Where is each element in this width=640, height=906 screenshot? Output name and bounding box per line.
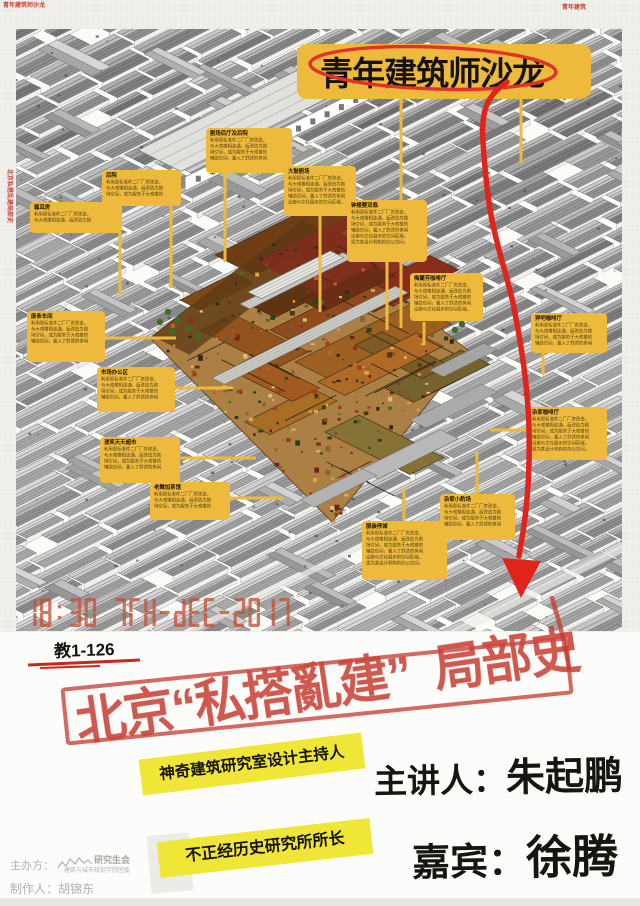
- svg-text:现为某设计机构的办公空间。: 现为某设计机构的办公空间。: [351, 239, 408, 246]
- svg-text:利用原标准件二厂厂房改造，: 利用原标准件二厂厂房改造，: [101, 376, 158, 383]
- svg-text:利用原标准件二厂厂房改造，: 利用原标准件二厂厂房改造，: [414, 282, 471, 289]
- svg-text:场空间，成为服务于大戏楼的: 场空间，成为服务于大戏楼的: [31, 332, 89, 339]
- svg-text:建筑与城市规划学院团委: 建筑与城市规划学院团委: [64, 866, 130, 874]
- svg-text:北京私搭乱建局部史: 北京私搭乱建局部史: [6, 169, 14, 224]
- svg-text:服装停城: 服装停城: [366, 522, 388, 530]
- svg-text:辅助空间，置入了舒适的休闲: 辅助空间，置入了舒适的休闲: [288, 193, 346, 200]
- svg-text:设施与文化展示的空间区域。: 设施与文化展示的空间区域。: [288, 199, 345, 206]
- svg-text:与大戏楼相连通，后改造为剧: 与大戏楼相连通，后改造为剧: [210, 143, 268, 150]
- svg-text:利用原标准件二厂厂房改造，: 利用原标准件二厂厂房改造，: [104, 446, 161, 453]
- svg-text:辅助空间，置入了舒适的休闲: 辅助空间，置入了舒适的休闲: [532, 434, 590, 441]
- svg-text:辅助空间，置入了舒适的休闲: 辅助空间，置入了舒适的休闲: [444, 521, 502, 528]
- svg-text:与大戏楼相连通，后改造为剧: 与大戏楼相连通，后改造为剧: [104, 452, 162, 459]
- svg-text:辅助空间，置入了舒适的休闲: 辅助空间，置入了舒适的休闲: [366, 548, 424, 555]
- svg-text:狎吧咖啡厅: 狎吧咖啡厅: [535, 314, 563, 322]
- svg-text:利用原标准件二厂厂房改造，: 利用原标准件二厂厂房改造，: [351, 209, 408, 216]
- svg-text:设施与文化展示的空间区域。: 设施与文化展示的空间区域。: [351, 233, 408, 240]
- svg-text:设施与文化展示的空间区域。: 设施与文化展示的空间区域。: [532, 440, 589, 447]
- svg-text:场空间，成为服务于大戏楼的: 场空间，成为服务于大戏楼的: [101, 388, 159, 395]
- svg-text:与大戏楼相连通，后改造为剧: 与大戏楼相连通，后改造为剧: [532, 422, 590, 429]
- svg-text:场空间，成为服务于大戏楼的: 场空间，成为服务于大戏楼的: [104, 458, 162, 465]
- svg-text:与大戏楼相连通，后改造为剧: 与大戏楼相连通，后改造为剧: [106, 185, 164, 192]
- svg-text:辅助空间，置入了舒适的休闲: 辅助空间，置入了舒适的休闲: [351, 227, 409, 234]
- svg-text:废条车间: 废条车间: [31, 312, 53, 320]
- svg-text:与大戏楼相连通，后改造为剧: 与大戏楼相连通，后改造为剧: [351, 215, 409, 222]
- svg-text:辅助空间，置入了舒适的休闲: 辅助空间，置入了舒适的休闲: [31, 338, 89, 345]
- svg-text:辅助空间，置入了舒适的休闲: 辅助空间，置入了舒适的休闲: [414, 300, 472, 307]
- svg-text:辅助空间，置入了舒适的休闲: 辅助空间，置入了舒适的休闲: [210, 155, 268, 162]
- svg-text:与大戏楼相连通，后改造为剧: 与大戏楼相连通，后改造为剧: [535, 328, 593, 335]
- svg-text:场空间，成为服务于大戏楼的: 场空间，成为服务于大戏楼的: [210, 149, 268, 156]
- svg-text:场空间，成为服务于大戏楼的: 场空间，成为服务于大戏楼的: [154, 503, 212, 510]
- svg-text:酱耳房: 酱耳房: [34, 203, 51, 211]
- svg-text:与大戏楼相连通，后改造为剧: 与大戏楼相连通，后改造为剧: [366, 536, 424, 543]
- svg-text:场空间，成为服务于大戏楼的: 场空间，成为服务于大戏楼的: [351, 221, 409, 228]
- svg-text:大鼓剧场: 大鼓剧场: [288, 167, 310, 175]
- svg-text:与大戏楼相连通，后改造为剧: 与大戏楼相连通，后改造为剧: [444, 509, 502, 516]
- svg-text:杂家咖啡厅: 杂家咖啡厅: [532, 408, 560, 416]
- svg-text:与大戏楼相连通，后改造为剧: 与大戏楼相连通，后改造为剧: [288, 181, 346, 188]
- svg-text:设施与文化展示的空间区域。: 设施与文化展示的空间区域。: [414, 306, 471, 313]
- svg-text:辅助空间，置入了舒适的休闲: 辅助空间，置入了舒适的休闲: [535, 340, 593, 347]
- svg-text:设施与文化展示的空间区域。: 设施与文化展示的空间区域。: [366, 554, 423, 561]
- svg-text:利用原标准件二厂厂房改造，: 利用原标准件二厂厂房改造，: [444, 503, 501, 510]
- svg-text:与大戏楼相连通，后改造为剧: 与大戏楼相连通，后改造为剧: [101, 382, 159, 389]
- svg-text:利用原标准件二厂厂房改造，: 利用原标准件二厂厂房改造，: [366, 530, 423, 537]
- svg-text:现为某设计机构的办公空间。: 现为某设计机构的办公空间。: [366, 560, 423, 567]
- svg-text:场空间，成为服务于大戏楼的: 场空间，成为服务于大戏楼的: [288, 187, 346, 194]
- svg-text:老舞加茶馆: 老舞加茶馆: [154, 483, 182, 491]
- svg-text:剧场后厅及后院: 剧场后厅及后院: [210, 129, 248, 137]
- svg-text:速笑天天超市: 速笑天天超市: [104, 438, 137, 446]
- svg-text:辅助空间，置入了舒适的休闲: 辅助空间，置入了舒适的休闲: [101, 394, 159, 401]
- svg-text:利用原标准件二厂厂房改造，: 利用原标准件二厂厂房改造，: [31, 320, 88, 327]
- svg-text:现为某设计机构的办公空间。: 现为某设计机构的办公空间。: [532, 446, 589, 453]
- svg-text:与大戏楼相连通，后改造为剧: 与大戏楼相连通，后改造为剧: [34, 217, 92, 224]
- svg-text:利用原标准件二厂厂房改造，: 利用原标准件二厂厂房改造，: [106, 179, 163, 186]
- svg-text:市场办公区: 市场办公区: [101, 368, 129, 376]
- svg-text:利用原标准件二厂厂房改造，: 利用原标准件二厂厂房改造，: [154, 491, 211, 498]
- svg-text:杂家小酌场: 杂家小酌场: [444, 495, 472, 503]
- svg-text:青年建筑师沙龙: 青年建筑师沙龙: [3, 1, 45, 9]
- svg-text:场空间，成为服务于大戏楼的: 场空间，成为服务于大戏楼的: [532, 428, 590, 435]
- svg-text:利用原标准件二厂厂房改造，: 利用原标准件二厂厂房改造，: [34, 211, 91, 218]
- svg-text:场空间，成为服务于大戏楼的: 场空间，成为服务于大戏楼的: [106, 191, 164, 198]
- svg-text:场空间，成为服务于大戏楼的: 场空间，成为服务于大戏楼的: [366, 542, 424, 549]
- svg-text:后院: 后院: [106, 171, 117, 179]
- svg-text:利用原标准件二厂厂房改造，: 利用原标准件二厂厂房改造，: [535, 322, 592, 329]
- svg-text:辅助空间，置入了舒适的休闲: 辅助空间，置入了舒适的休闲: [104, 464, 162, 471]
- svg-text:与大戏楼相连通，后改造为剧: 与大戏楼相连通，后改造为剧: [31, 326, 89, 333]
- svg-text:钟楼要双临: 钟楼要双临: [351, 201, 379, 209]
- svg-text:研究生会: 研究生会: [94, 854, 131, 865]
- svg-text:利用原标准件二厂厂房改造，: 利用原标准件二厂厂房改造，: [210, 137, 267, 144]
- svg-text:梅蘭芳咖啡厅: 梅蘭芳咖啡厅: [414, 274, 447, 282]
- svg-text:场空间，成为服务于大戏楼的: 场空间，成为服务于大戏楼的: [414, 294, 472, 301]
- svg-text:与大戏楼相连通，后改造为剧: 与大戏楼相连通，后改造为剧: [414, 288, 472, 295]
- svg-text:场空间，成为服务于大戏楼的: 场空间，成为服务于大戏楼的: [444, 515, 502, 522]
- svg-text:利用原标准件二厂厂房改造，: 利用原标准件二厂厂房改造，: [532, 416, 589, 423]
- svg-text:青年建筑: 青年建筑: [562, 3, 586, 11]
- svg-text:利用原标准件二厂厂房改造，: 利用原标准件二厂厂房改造，: [288, 175, 345, 182]
- svg-text:场空间，成为服务于大戏楼的: 场空间，成为服务于大戏楼的: [535, 334, 593, 341]
- svg-text:与大戏楼相连通，后改造为剧: 与大戏楼相连通，后改造为剧: [154, 497, 212, 504]
